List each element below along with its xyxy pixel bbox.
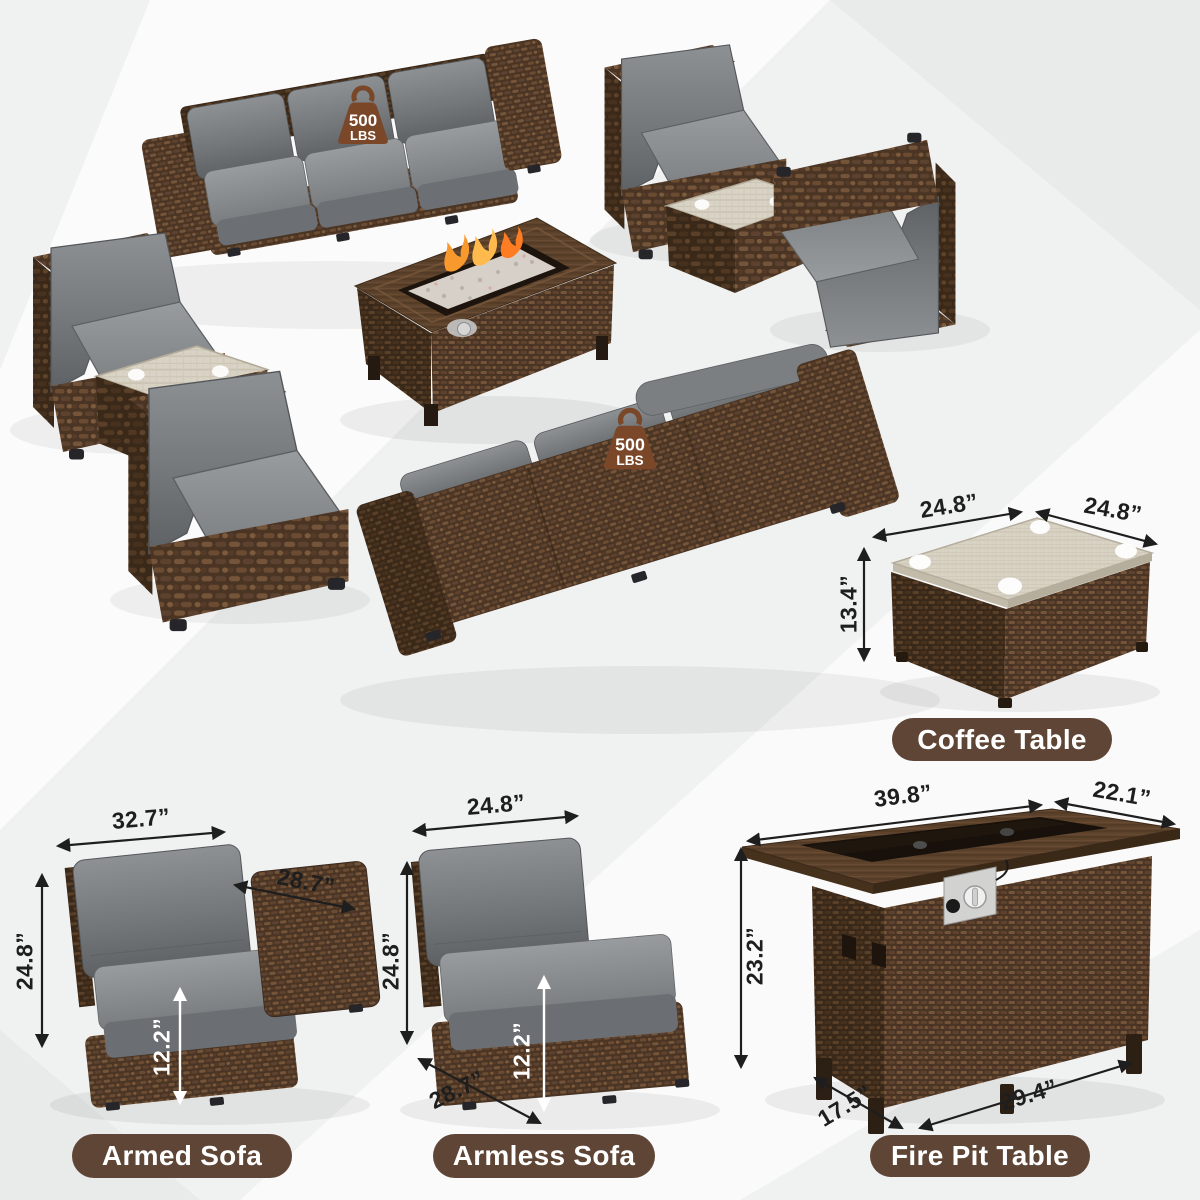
coffee-table-height-label: 13.4” [836,575,863,633]
armed-sofa-seat-height-label: 12.2” [149,1018,176,1076]
sofa-bottom-shadow [340,666,940,734]
armless-sofa-label-pill: Armless Sofa [433,1134,655,1178]
fire-pit-table-label-pill: Fire Pit Table [870,1135,1090,1177]
weight-badge-unit: LBS [350,128,376,143]
armed-sofa-label: Armed Sofa [102,1140,262,1172]
armed-sofa-height-label: 24.8” [12,932,39,990]
fire-pit-knob [458,323,471,336]
armed-sofa-label-pill: Armed Sofa [72,1134,292,1178]
weight-badge-unit: LBS [616,453,643,468]
armed-sofa-width-label: 32.7” [111,803,171,835]
fire-pit-height-label: 23.2” [742,927,769,985]
armless-sofa-width-label: 24.8” [466,789,526,821]
fire-pit-table-label: Fire Pit Table [891,1140,1069,1172]
armless-sofa-seat-height-label: 12.2” [509,1022,536,1080]
armless-sofa-label: Armless Sofa [453,1140,636,1172]
coffee-table-label-pill: Coffee Table [892,718,1112,761]
coffee-table-label: Coffee Table [917,724,1087,756]
scene-graphics: 500 LBS 500 LBS [0,0,1200,1200]
product-dimension-diagram: 500 LBS 500 LBS 24.8” 24.8” 13.4” 32.7” … [0,0,1200,1200]
weight-badge-value: 500 [615,434,645,454]
armless-sofa-height-label: 24.8” [378,932,405,990]
